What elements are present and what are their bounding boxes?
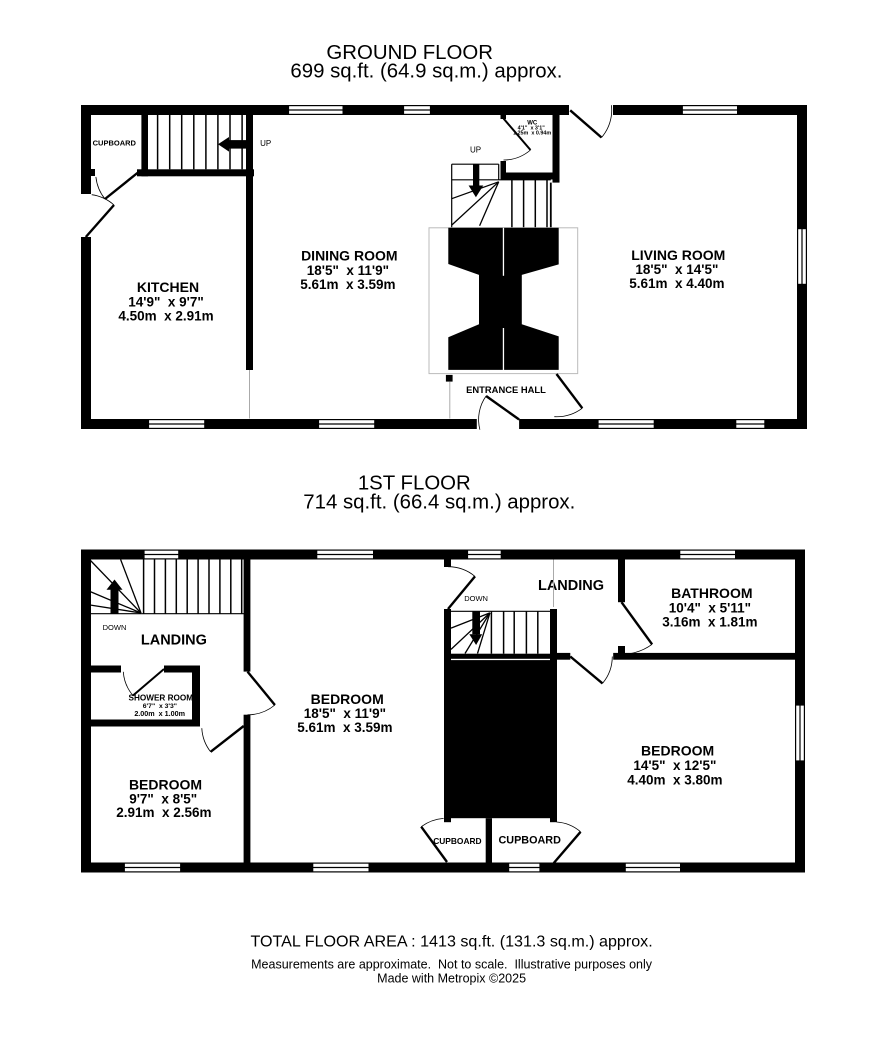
svg-text:BEDROOM: BEDROOM bbox=[641, 743, 714, 759]
svg-text:14'9" x 9'7": 14'9" x 9'7" bbox=[128, 294, 204, 309]
svg-text:TOTAL FLOOR AREA : 1413 sq.ft.: TOTAL FLOOR AREA : 1413 sq.ft. (131.3 sq… bbox=[250, 933, 652, 951]
svg-text:BATHROOM: BATHROOM bbox=[671, 585, 752, 601]
svg-text:18'5" x 11'9": 18'5" x 11'9" bbox=[304, 706, 386, 721]
svg-text:699 sq.ft. (64.9 sq.m.) approx: 699 sq.ft. (64.9 sq.m.) approx. bbox=[290, 61, 562, 83]
svg-text:2.91m x 2.56m: 2.91m x 2.56m bbox=[116, 805, 211, 820]
svg-text:CUPBOARD: CUPBOARD bbox=[433, 836, 481, 846]
svg-text:CUPBOARD: CUPBOARD bbox=[499, 834, 562, 846]
svg-text:10'4" x 5'11": 10'4" x 5'11" bbox=[669, 600, 751, 615]
svg-text:ENTRANCE HALL: ENTRANCE HALL bbox=[466, 384, 546, 395]
svg-text:DINING ROOM: DINING ROOM bbox=[301, 248, 397, 264]
svg-text:2.00m x 1.00m: 2.00m x 1.00m bbox=[134, 709, 185, 718]
svg-text:5.61m x 3.59m: 5.61m x 3.59m bbox=[297, 720, 392, 735]
svg-text:4.50m x 2.91m: 4.50m x 2.91m bbox=[118, 309, 213, 324]
svg-text:BEDROOM: BEDROOM bbox=[129, 776, 202, 792]
svg-text:UP: UP bbox=[260, 139, 271, 148]
svg-text:LANDING: LANDING bbox=[141, 632, 207, 648]
svg-text:DOWN: DOWN bbox=[464, 594, 488, 603]
svg-text:18'5" x 11'9": 18'5" x 11'9" bbox=[307, 263, 389, 278]
svg-text:5.61m x 3.59m: 5.61m x 3.59m bbox=[300, 277, 395, 292]
svg-text:KITCHEN: KITCHEN bbox=[137, 279, 199, 295]
svg-text:3.16m x 1.81m: 3.16m x 1.81m bbox=[662, 615, 757, 630]
svg-text:18'5" x 14'5": 18'5" x 14'5" bbox=[635, 262, 718, 277]
svg-text:4.40m x 3.80m: 4.40m x 3.80m bbox=[627, 773, 722, 788]
svg-text:UP: UP bbox=[470, 146, 481, 155]
svg-text:CUPBOARD: CUPBOARD bbox=[93, 139, 137, 148]
svg-text:14'5" x 12'5": 14'5" x 12'5" bbox=[633, 758, 716, 773]
svg-text:LIVING ROOM: LIVING ROOM bbox=[631, 247, 725, 263]
svg-text:LANDING: LANDING bbox=[538, 578, 604, 594]
svg-text:1.25m x 0.94m: 1.25m x 0.94m bbox=[513, 131, 551, 137]
svg-text:Measurements are approximate.: Measurements are approximate. Not to sca… bbox=[251, 957, 653, 971]
svg-text:Made with Metropix ©2025: Made with Metropix ©2025 bbox=[377, 971, 526, 985]
svg-text:SHOWER ROOM: SHOWER ROOM bbox=[129, 694, 194, 703]
svg-text:DOWN: DOWN bbox=[103, 623, 127, 632]
svg-text:BEDROOM: BEDROOM bbox=[311, 691, 384, 707]
svg-text:714 sq.ft. (66.4 sq.m.) approx: 714 sq.ft. (66.4 sq.m.) approx. bbox=[303, 492, 575, 514]
svg-text:5.61m x 4.40m: 5.61m x 4.40m bbox=[629, 276, 724, 291]
